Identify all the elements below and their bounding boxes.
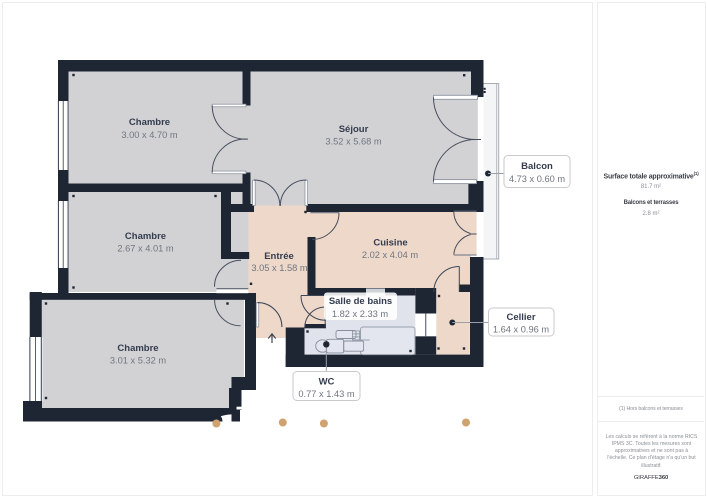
svg-text:Balcon: Balcon xyxy=(521,161,553,172)
svg-text:1.82 x 2.33 m: 1.82 x 2.33 m xyxy=(332,309,389,319)
svg-text:2.67 x 4.01 m: 2.67 x 4.01 m xyxy=(117,244,174,254)
svg-text:4.73 x 0.60 m: 4.73 x 0.60 m xyxy=(509,174,566,184)
svg-text:Séjour: Séjour xyxy=(339,124,369,135)
svg-text:3.52 x 5.68 m: 3.52 x 5.68 m xyxy=(325,137,382,147)
svg-text:WC: WC xyxy=(319,377,335,388)
svg-text:0.77 x 1.43 m: 0.77 x 1.43 m xyxy=(298,389,355,399)
svg-text:Cuisine: Cuisine xyxy=(373,238,407,249)
svg-text:Cellier: Cellier xyxy=(506,312,535,323)
svg-text:Salle de bains: Salle de bains xyxy=(329,296,392,307)
svg-text:2.02 x 4.04 m: 2.02 x 4.04 m xyxy=(362,250,419,260)
svg-text:1.64 x 0.96 m: 1.64 x 0.96 m xyxy=(493,325,550,335)
svg-text:3.01 x 5.32 m: 3.01 x 5.32 m xyxy=(110,356,167,366)
svg-text:Chambre: Chambre xyxy=(129,117,170,128)
svg-text:Entrée: Entrée xyxy=(264,251,294,262)
svg-text:3.00 x 4.70 m: 3.00 x 4.70 m xyxy=(121,130,178,140)
svg-text:3.05 x 1.58 m: 3.05 x 1.58 m xyxy=(251,263,308,273)
svg-text:Chambre: Chambre xyxy=(117,343,158,354)
svg-text:Chambre: Chambre xyxy=(125,231,166,242)
